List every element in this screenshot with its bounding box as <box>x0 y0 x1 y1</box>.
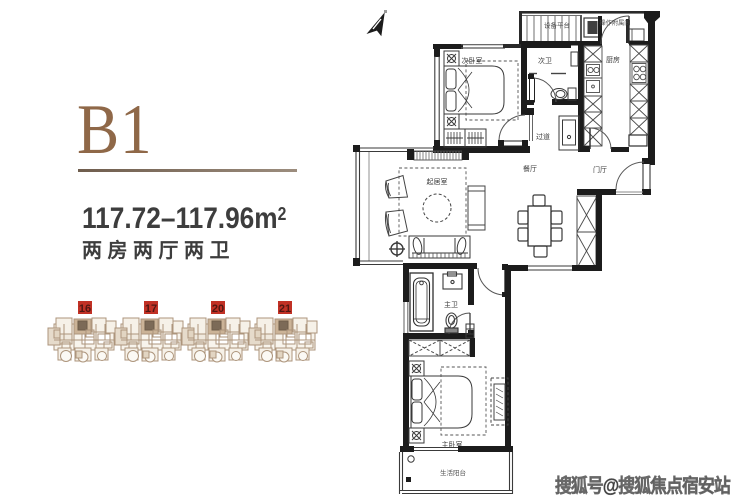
svg-text:主卫: 主卫 <box>444 300 458 309</box>
svg-text:厨房: 厨房 <box>606 55 620 64</box>
svg-text:过道: 过道 <box>536 132 550 141</box>
svg-text:起居室: 起居室 <box>427 177 448 186</box>
svg-text:设备平台: 设备平台 <box>544 21 570 30</box>
svg-text:餐厅: 餐厅 <box>523 164 537 173</box>
svg-text:次卧室: 次卧室 <box>462 56 483 65</box>
svg-text:次卫: 次卫 <box>538 56 552 65</box>
svg-text:门厅: 门厅 <box>593 165 607 174</box>
svg-text:生活阳台: 生活阳台 <box>440 468 466 477</box>
